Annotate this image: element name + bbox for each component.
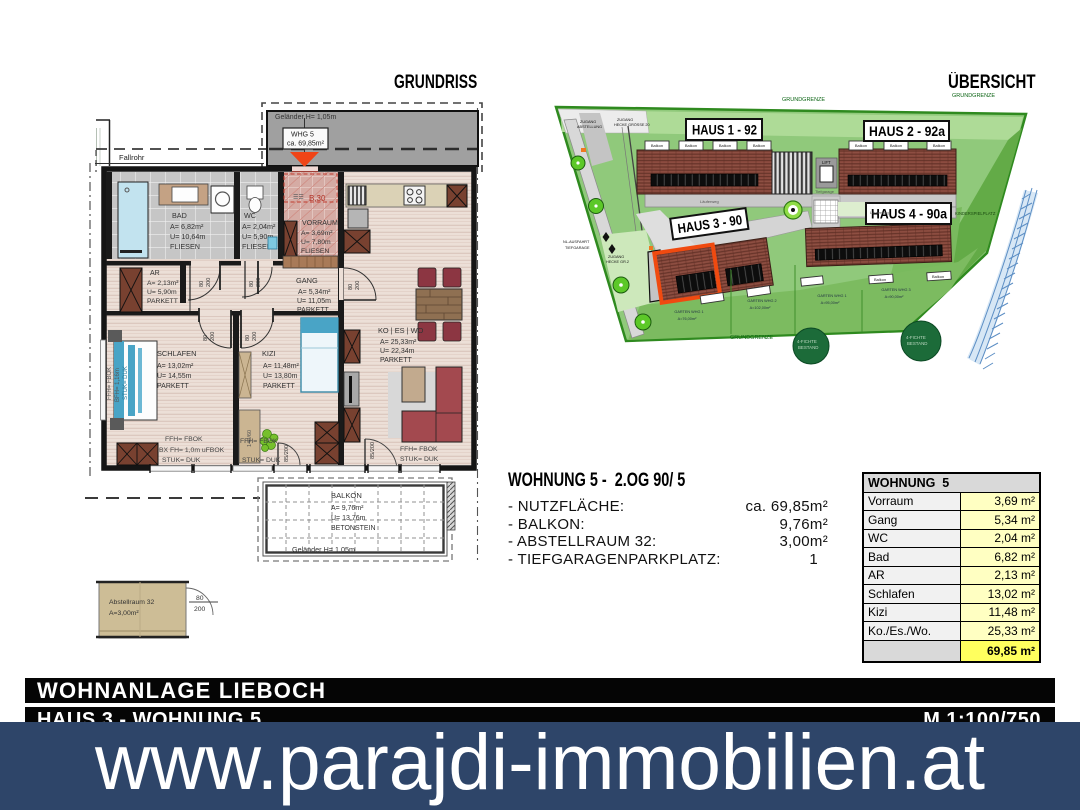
svg-text:ZUGANG: ZUGANG: [617, 118, 633, 122]
svg-text:B,30: B,30: [309, 194, 326, 203]
svg-text:U= 7,80m: U= 7,80m: [301, 239, 331, 246]
svg-text:FLIESEN: FLIESEN: [242, 242, 272, 251]
svg-text:GRUNDGRENZE: GRUNDGRENZE: [952, 93, 995, 99]
svg-text:Balkon: Balkon: [855, 143, 867, 148]
svg-text:Balkon: Balkon: [685, 143, 697, 148]
svg-text:ABSTELLUNG: ABSTELLUNG: [577, 125, 602, 129]
svg-text:Balkon: Balkon: [719, 143, 731, 148]
svg-text:TIEFGARAGE: TIEFGARAGE: [565, 246, 590, 250]
svg-text:A= 13,02m²: A= 13,02m²: [157, 363, 194, 370]
svg-text:KINDERSPIELPLATZ: KINDERSPIELPLATZ: [955, 211, 996, 216]
svg-text:A=3,00m²: A=3,00m²: [109, 610, 139, 617]
svg-text:4-FICHTE: 4-FICHTE: [906, 335, 926, 340]
svg-text:SCHLAFEN: SCHLAFEN: [157, 349, 196, 358]
svg-text:FFH= FBOK: FFH= FBOK: [400, 446, 438, 453]
svg-text:FFH= FBOK: FFH= FBOK: [240, 438, 278, 445]
svg-text:Läuferweg: Läuferweg: [700, 199, 719, 204]
svg-text:Balkon: Balkon: [933, 143, 945, 148]
svg-text:Balkon: Balkon: [753, 143, 765, 148]
svg-text:KIZI: KIZI: [262, 349, 276, 358]
svg-text:GARTEN WHG 3: GARTEN WHG 3: [881, 288, 910, 292]
svg-text:Läuferweg: Läuferweg: [870, 210, 889, 215]
svg-text:A= 2,13m²: A= 2,13m²: [147, 280, 179, 287]
svg-text:80: 80: [249, 281, 255, 287]
svg-text:STUK= DUK: STUK= DUK: [162, 457, 201, 464]
svg-text:ZUGANG: ZUGANG: [608, 255, 624, 259]
svg-text:4-FICHTE: 4-FICHTE: [797, 339, 817, 344]
svg-text:Abstellraum 32: Abstellraum 32: [109, 599, 155, 606]
svg-text:200: 200: [252, 332, 258, 341]
svg-text:FFH= FBOK: FFH= FBOK: [165, 436, 203, 443]
svg-text:Tiefgarage: Tiefgarage: [815, 189, 835, 194]
svg-text:LIFT: LIFT: [822, 160, 831, 165]
svg-text:PARKETT: PARKETT: [157, 383, 189, 390]
svg-text:AR: AR: [150, 270, 160, 277]
svg-text:GRUNDGRENZE: GRUNDGRENZE: [782, 97, 825, 103]
svg-text:BALKON: BALKON: [331, 491, 362, 500]
svg-text:PARKETT: PARKETT: [380, 357, 412, 364]
svg-text:A= 5,34m²: A= 5,34m²: [298, 289, 331, 296]
svg-text:BETONSTEIN: BETONSTEIN: [331, 525, 376, 532]
svg-text:80: 80: [199, 281, 205, 287]
svg-text:200: 200: [194, 606, 206, 613]
svg-text:Balkon: Balkon: [890, 143, 902, 148]
svg-text:PARKETT: PARKETT: [263, 383, 295, 390]
svg-text:200: 200: [206, 278, 212, 287]
svg-text:200: 200: [355, 281, 361, 290]
svg-text:U= 14,55m: U= 14,55m: [157, 373, 192, 380]
svg-text:BESTAND: BESTAND: [907, 341, 927, 346]
svg-text:GARTEN WHG 1: GARTEN WHG 1: [817, 294, 846, 298]
svg-text:Balkon: Balkon: [874, 277, 886, 282]
svg-text:A= 11,48m²: A= 11,48m²: [263, 363, 300, 370]
svg-text:Geländer H= 1,05m: Geländer H= 1,05m: [292, 545, 355, 554]
svg-text:GARTEN WHG 1: GARTEN WHG 1: [674, 310, 703, 314]
svg-text:FFH= FBOK: FFH= FBOK: [107, 367, 113, 400]
svg-text:80: 80: [196, 595, 204, 602]
svg-text:☰☰: ☰☰: [293, 194, 304, 201]
svg-text:FLIESEN: FLIESEN: [301, 248, 329, 255]
svg-text:A= 9,76m²: A= 9,76m²: [331, 505, 364, 512]
svg-text:Fallrohr: Fallrohr: [119, 153, 145, 162]
svg-text:A= 2,04m²: A= 2,04m²: [242, 222, 276, 231]
svg-text:WHG 5: WHG 5: [291, 132, 314, 139]
svg-text:NL-AUSFAHRT: NL-AUSFAHRT: [563, 240, 590, 244]
svg-text:A= 25,33m²: A= 25,33m²: [380, 339, 417, 346]
svg-text:U= 11,05m: U= 11,05m: [297, 298, 331, 305]
svg-text:Geländer H= 1,05m: Geländer H= 1,05m: [275, 114, 336, 121]
svg-text:PARKETT: PARKETT: [147, 298, 178, 305]
svg-text:80: 80: [245, 335, 251, 341]
svg-text:GANG: GANG: [296, 276, 318, 285]
svg-text:WC: WC: [244, 211, 256, 220]
svg-text:BAD: BAD: [172, 211, 187, 220]
svg-text:HAUS 1 - 92: HAUS 1 - 92: [692, 123, 757, 138]
svg-text:200: 200: [210, 332, 216, 341]
svg-text:ca. 69,85m²: ca. 69,85m²: [287, 141, 325, 148]
svg-text:HAUS 2 - 92a: HAUS 2 - 92a: [869, 124, 945, 139]
svg-text:HECKE GRÖSSE 20: HECKE GRÖSSE 20: [614, 123, 650, 127]
svg-text:Balkon: Balkon: [932, 274, 944, 279]
svg-text:GRUNDGRENZE: GRUNDGRENZE: [730, 335, 773, 341]
svg-text:U= 22,34m: U= 22,34m: [380, 348, 415, 355]
svg-text:80: 80: [348, 284, 354, 290]
svg-text:U= 10,64m: U= 10,64m: [170, 232, 205, 241]
svg-text:ZUGANG: ZUGANG: [580, 120, 596, 124]
svg-text:200: 200: [256, 278, 262, 287]
svg-text:BESTAND: BESTAND: [798, 345, 818, 350]
svg-text:FLIESEN: FLIESEN: [170, 242, 200, 251]
svg-text:BX FH= 1,0m uFBOK: BX FH= 1,0m uFBOK: [159, 447, 225, 454]
svg-text:85/200: 85/200: [370, 442, 376, 459]
svg-text:A=76,00m²: A=76,00m²: [678, 317, 697, 321]
svg-text:GARTEN WHG 2: GARTEN WHG 2: [747, 299, 776, 303]
svg-text:A=102,00m²: A=102,00m²: [750, 306, 772, 310]
svg-text:STUK= DUK: STUK= DUK: [400, 456, 439, 463]
svg-text:HECKE GR.2: HECKE GR.2: [606, 260, 629, 264]
svg-text:A= 3,69m²: A= 3,69m²: [301, 230, 333, 237]
svg-text:VORRAUM: VORRAUM: [302, 220, 338, 227]
svg-text:Balkon: Balkon: [651, 143, 663, 148]
svg-text:U= 13,76m: U= 13,76m: [331, 515, 366, 522]
svg-text:U= 13,80m: U= 13,80m: [263, 373, 298, 380]
svg-text:KO | ES | WO: KO | ES | WO: [378, 326, 424, 335]
svg-text:A= 6,82m²: A= 6,82m²: [170, 222, 204, 231]
svg-text:BFH= 1,16m: BFH= 1,16m: [115, 368, 121, 402]
svg-text:A=90,00m²: A=90,00m²: [885, 295, 904, 299]
svg-text:PARKETT: PARKETT: [297, 307, 329, 314]
svg-text:85/200: 85/200: [284, 445, 290, 462]
svg-text:80: 80: [203, 335, 209, 341]
svg-text:STUK= DUK: STUK= DUK: [242, 457, 281, 464]
svg-text:A=95,00m²: A=95,00m²: [821, 301, 840, 305]
svg-text:U= 5,90m: U= 5,90m: [147, 289, 177, 296]
svg-text:STUK= DUK: STUK= DUK: [123, 366, 129, 400]
